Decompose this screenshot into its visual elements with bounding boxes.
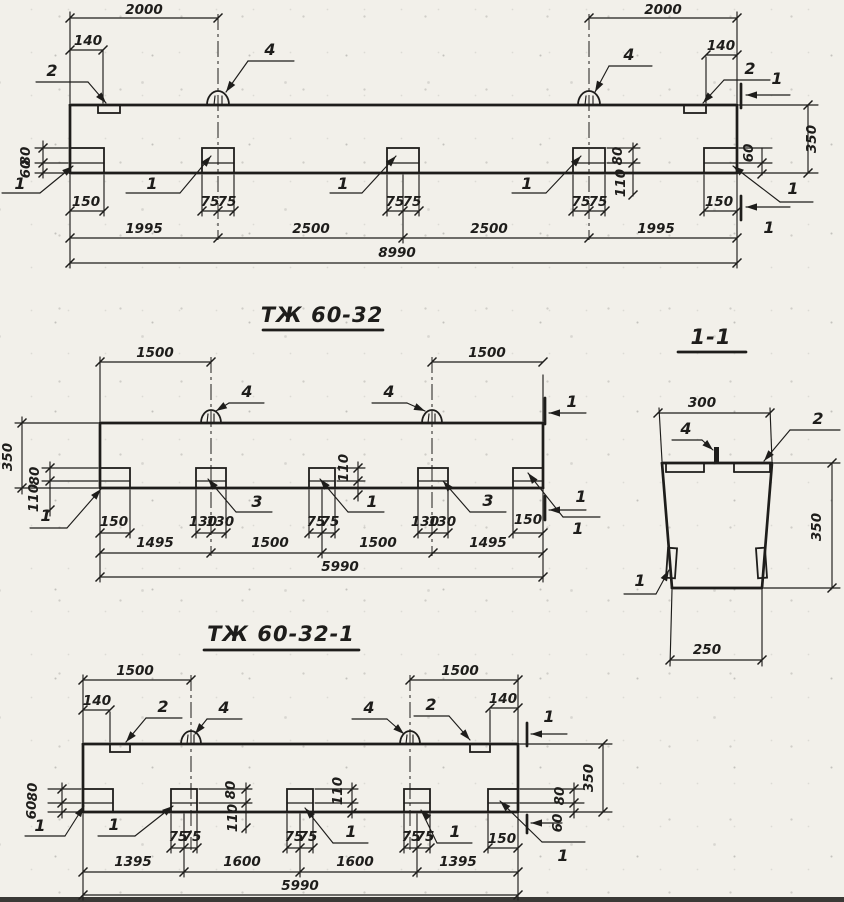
loop-callout-left: 4 [263,40,275,59]
blueprint-canvas: 2000 2000 140 140 2 4 4 2 1 350 60 80 11… [0,0,844,902]
dim-stud-half: 75 [201,194,220,210]
stud-callout: 1 [521,174,532,193]
chain-dim: 1495 [469,535,507,551]
chain-dim: 1395 [439,854,477,870]
dim-stud-half-75: 75 [321,514,340,530]
dim-stud-half-130: 130 [428,514,456,530]
section-cut-number-top: 1 [566,392,577,411]
dim-stud-half: 75 [572,194,591,210]
dim-height: 350 [0,443,16,471]
stud-callout: 1 [449,822,460,841]
plate-callout-right: 2 [744,59,755,78]
chain-dim: 1495 [136,535,174,551]
section-view: 1-1 [624,325,840,666]
plate-callout-left: 2 [157,697,168,716]
dim-stud-half: 75 [386,194,405,210]
chain-dim: 1600 [223,854,261,870]
section-cut-number-top: 1 [543,707,554,726]
chain-dim: 1995 [125,221,163,237]
stud-callout: 1 [366,492,377,511]
chain-dim: 1395 [114,854,152,870]
dim-end-stud-left: 150 [100,514,128,530]
embedded-studs [83,789,518,812]
dim-h80-right: 80 [552,787,568,806]
dim-h110-stud: 110 [613,169,629,197]
stud-callout: 1 [337,174,348,193]
chain-dim: 1600 [336,854,374,870]
dim-stud-half-130: 130 [206,514,234,530]
dim-stud-half: 75 [589,194,608,210]
stud-callout: 1 [14,174,25,193]
dim-h80-left: 80 [25,783,41,802]
stud-callout: 1 [146,174,157,193]
stud-callout: 3 [482,491,493,510]
stud-callout: 1 [108,815,119,834]
dim-end-stud-right: 150 [514,512,542,528]
weld-mark [714,447,719,463]
dim-stud-half: 75 [218,194,237,210]
dim-end-stud-left: 150 [72,194,100,210]
dim-end-stud: 150 [488,831,516,847]
dim-stud-half: 75 [416,829,435,845]
section-title: 1-1 [691,325,732,349]
chain-dim: 1500 [359,535,397,551]
dim-height: 350 [804,125,820,153]
plate-callout: 2 [812,409,823,428]
dim-h60-right: 60 [550,814,566,833]
dim-total: 5990 [321,559,359,575]
top-plate-section [666,464,770,472]
dim-h80: 80 [27,467,43,486]
dim-stud-half: 75 [403,194,422,210]
loop-callout-right: 4 [382,382,394,401]
dim-plate-offset-right: 140 [707,38,735,54]
dim-total: 8990 [378,245,416,261]
loop-callout-left: 4 [217,698,229,717]
dim-span-right: 1500 [468,345,506,361]
middle-beam-view: ТЖ 60-32 [0,303,600,582]
stud-callout: 1 [575,487,586,506]
dim-total: 5990 [281,878,319,894]
view-title: ТЖ 60-32-1 [207,622,355,646]
top-beam-view: 2000 2000 140 140 2 4 4 2 1 350 60 80 11… [2,2,820,268]
dim-width-top: 300 [688,395,716,411]
dim-end-stud-right: 150 [705,194,733,210]
dim-span-left: 1500 [136,345,174,361]
dim-plate-offset-right: 140 [489,691,517,707]
dim-span-right: 2000 [644,2,682,18]
weld-callout: 4 [679,419,691,438]
section-cut-number-bottom: 1 [763,218,774,237]
dim-height: 350 [581,764,597,792]
scan-edge-strip [0,897,844,902]
stud-callout: 3 [251,492,262,511]
dim-span-left: 1500 [116,663,154,679]
stud-callout: 1 [34,816,45,835]
dim-span-right: 1500 [441,663,479,679]
loop-callout-right: 4 [622,45,634,64]
side-plate-right [756,548,767,579]
dim-height: 350 [809,513,825,541]
chain-dim: 1500 [251,535,289,551]
embedded-studs [70,148,737,173]
dim-stud-half: 75 [299,829,318,845]
bottom-beam-view: ТЖ 60-32-1 [24,622,612,900]
chain-dim: 2500 [292,221,330,237]
blueprint-page: 2000 2000 140 140 2 4 4 2 1 350 60 80 11… [0,0,844,902]
dim-stud-half: 75 [183,829,202,845]
section-cut-number-bottom: 1 [557,846,568,865]
dim-h60-right: 60 [741,144,757,163]
dim-width-bottom: 250 [693,642,721,658]
section-cut-number-bottom: 1 [572,519,583,538]
plate-callout-right: 2 [425,695,436,714]
dim-h110-mid: 110 [336,454,352,482]
view-title: ТЖ 60-32 [261,303,384,327]
dim-plate-offset-left: 140 [74,33,102,49]
dim-h110-stud: 110 [225,804,241,832]
loop-callout-right: 4 [362,698,374,717]
side-plate-callout: 1 [634,571,645,590]
loop-callout-left: 4 [240,382,252,401]
embedded-studs [100,468,543,488]
stud-callout: 1 [345,822,356,841]
dim-h80-stud: 80 [223,781,239,800]
dim-span-left: 2000 [125,2,163,18]
chain-dim: 1995 [637,221,675,237]
dim-h80-stud: 80 [610,147,626,166]
dim-h110-mid: 110 [330,777,346,805]
plate-callout-left: 2 [46,61,57,80]
dim-plate-offset-left: 140 [83,693,111,709]
section-cut-number-top: 1 [771,69,782,88]
stud-callout: 1 [787,179,798,198]
chain-dim: 2500 [470,221,508,237]
stud-callout: 1 [40,506,51,525]
